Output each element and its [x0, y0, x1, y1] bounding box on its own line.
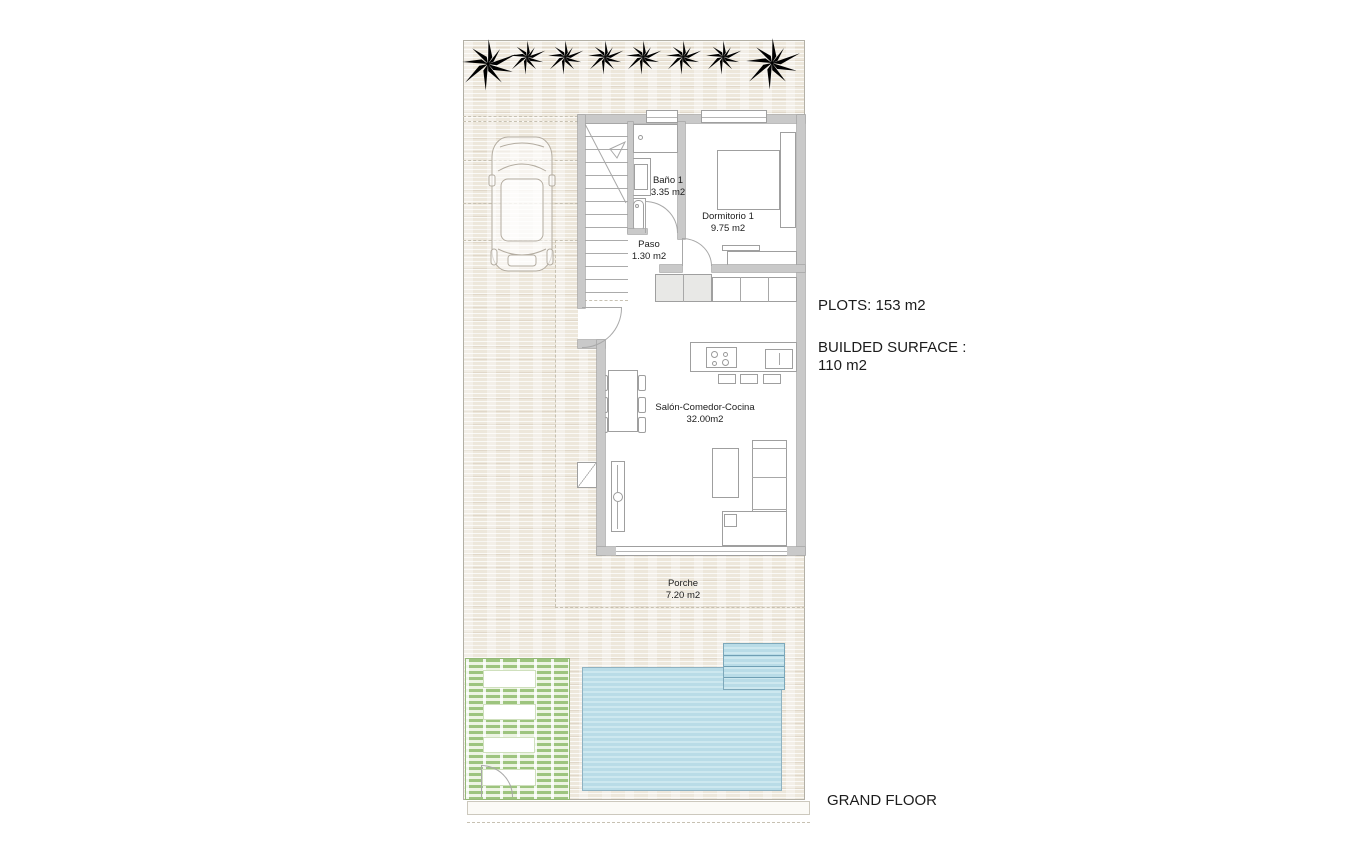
burner: [711, 351, 718, 358]
sofa-corner-cushion: [724, 514, 737, 527]
driveway-dashed-line: [463, 116, 578, 117]
garden-planter: [483, 704, 536, 720]
room-name: Paso: [599, 239, 699, 251]
room-name: Salón-Comedor-Cocina: [630, 402, 780, 414]
room-name: Baño 1: [618, 175, 718, 187]
palm-tree-icon: [584, 36, 626, 78]
sideboard-detail: [613, 492, 623, 502]
room-area: 3.35 m2: [618, 187, 718, 199]
room-area: 1.30 m2: [599, 251, 699, 263]
palm-tree-icon: [702, 36, 744, 78]
plots-area-text: PLOTS: 153 m2: [818, 297, 926, 315]
kitchen-counter: [712, 277, 797, 302]
wall: [712, 265, 805, 272]
room-area: 32.00m2: [630, 414, 780, 426]
street-dashed-line: [467, 822, 810, 823]
wall: [578, 115, 805, 123]
stair-cut-line: [584, 300, 628, 301]
counter-divider: [683, 274, 684, 302]
sofa-cushion-line: [752, 509, 787, 510]
cooktop: [706, 347, 737, 368]
built-surface-line1: BUILDED SURFACE :: [818, 339, 966, 357]
coffee-table: [712, 448, 739, 498]
room-label-porche: Porche 7.20 m2: [608, 578, 758, 602]
porch-dashed-line: [555, 240, 556, 607]
floor-plan-page: Baño 1 3.35 m2 Dormitorio 1 9.75 m2 Paso…: [0, 0, 1360, 850]
faucet: [779, 353, 780, 365]
sliding-glass-door: [616, 546, 787, 556]
room-area: 9.75 m2: [668, 223, 788, 235]
room-label-paso: Paso 1.30 m2: [599, 239, 699, 263]
sideboard-line: [617, 502, 618, 529]
room-label-dormitorio: Dormitorio 1 9.75 m2: [668, 211, 788, 235]
built-surface-text: BUILDED SURFACE : 110 m2: [818, 339, 966, 375]
bar-stool: [740, 374, 758, 384]
built-surface-line2: 110 m2: [818, 357, 966, 375]
wall: [797, 115, 805, 555]
sofa-cushion-line: [752, 477, 787, 478]
garden-planter: [483, 670, 536, 688]
burner: [722, 359, 729, 366]
room-area: 7.20 m2: [608, 590, 758, 602]
counter-divider: [740, 277, 741, 302]
bar-stool: [718, 374, 736, 384]
room-label-bano: Baño 1 3.35 m2: [618, 175, 718, 199]
wall: [660, 265, 682, 272]
palm-tree-icon: [622, 36, 664, 78]
wall: [597, 340, 605, 555]
stair-direction-arrow-icon: [584, 123, 628, 300]
car-icon: [488, 131, 556, 276]
wall: [578, 115, 585, 308]
shower-drain: [638, 135, 643, 140]
burner: [712, 361, 717, 366]
pool-steps: [723, 643, 785, 690]
palm-tree-icon: [544, 36, 586, 78]
bed: [717, 150, 780, 210]
driveway-dashed-line: [463, 121, 578, 122]
palm-tree-icon: [506, 36, 548, 78]
bar-stool: [763, 374, 781, 384]
window: [646, 110, 678, 123]
ac-unit: [577, 462, 597, 488]
chair: [638, 375, 646, 391]
floor-title: GRAND FLOOR: [827, 792, 937, 810]
bathtub-drain: [635, 204, 639, 208]
window: [701, 110, 767, 123]
burner: [723, 352, 728, 357]
room-name: Porche: [608, 578, 758, 590]
sideboard-line: [617, 465, 618, 492]
room-name: Dormitorio 1: [668, 211, 788, 223]
porch-dashed-line: [555, 607, 805, 608]
palm-tree-icon: [740, 31, 804, 95]
counter-divider: [768, 277, 769, 302]
garden-planter: [483, 737, 535, 753]
sidewalk: [467, 801, 810, 815]
sofa-cushion-line: [752, 448, 787, 449]
palm-tree-icon: [662, 36, 704, 78]
room-label-salon: Salón-Comedor-Cocina 32.00m2: [630, 402, 780, 426]
